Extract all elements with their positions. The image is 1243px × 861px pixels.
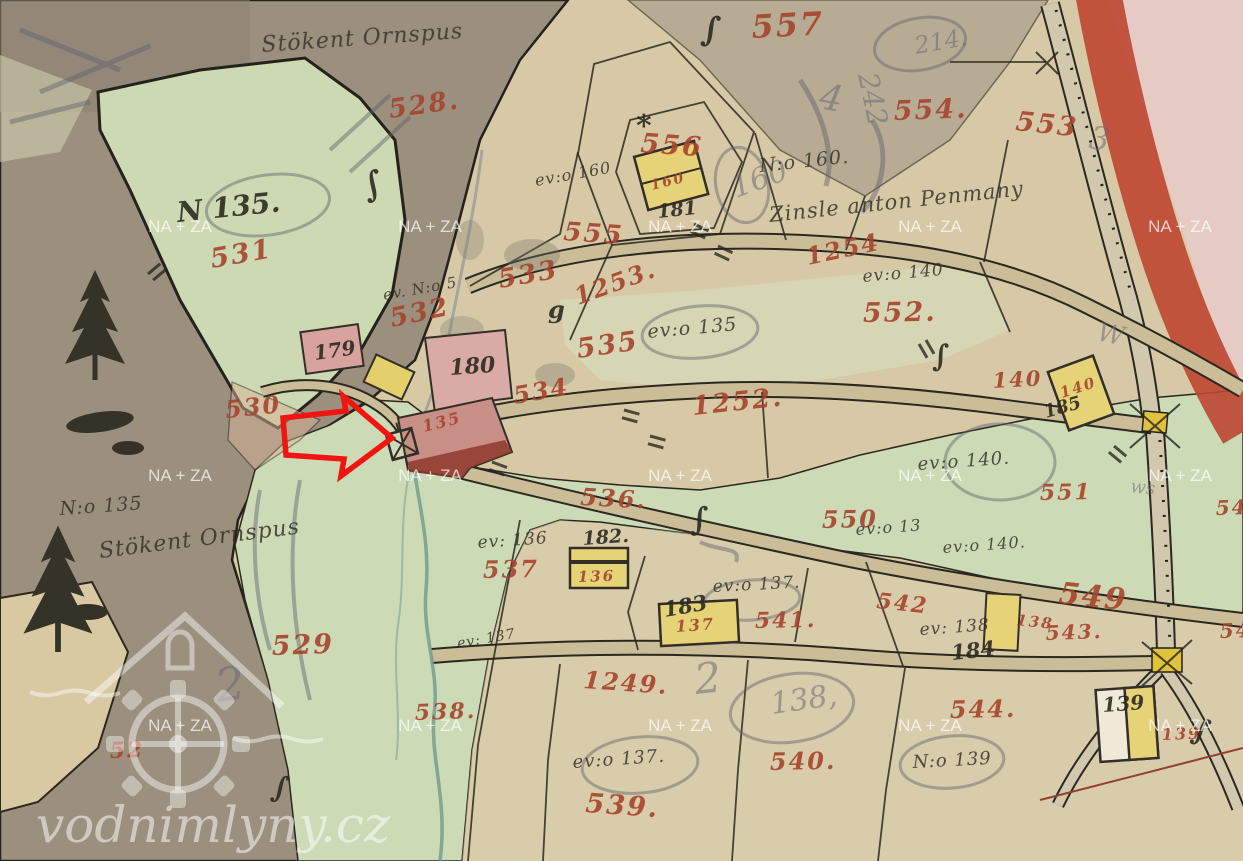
ink-label--14: ∫ bbox=[932, 339, 949, 374]
archive-watermark-2: NA + ZA bbox=[648, 217, 712, 236]
archive-watermark-9: NA + ZA bbox=[1148, 466, 1212, 485]
archive-watermark-3: NA + ZA bbox=[898, 217, 962, 236]
parcel-label-530-7: 530 bbox=[224, 389, 283, 424]
parcel-label-136-23: 136 bbox=[578, 567, 616, 586]
ink-label-182-2: 182. bbox=[582, 525, 630, 550]
parcel-label-540-34: 540. bbox=[770, 746, 837, 776]
archive-watermark-5: NA + ZA bbox=[148, 466, 212, 485]
ink-label-184-4: 184 bbox=[950, 636, 996, 665]
parcel-label-557-0: 557 bbox=[750, 4, 825, 46]
ink-label-180-8: 180 bbox=[449, 352, 497, 381]
parcel-label-543-29: 543. bbox=[1045, 619, 1103, 645]
cadastral-map: 214.160W24222138,43ws 557528.556554.5535… bbox=[0, 0, 1243, 861]
archive-watermark-1: NA + ZA bbox=[398, 217, 462, 236]
annotation-No139-17: N:o 139 bbox=[911, 748, 992, 773]
parcel-label-554-3: 554. bbox=[893, 93, 968, 127]
parcel-label-536-20: 536. bbox=[580, 482, 648, 514]
archive-watermark-12: NA + ZA bbox=[648, 716, 712, 735]
archive-watermark-4: NA + ZA bbox=[1148, 217, 1212, 236]
pencil-label-2-5: 2 bbox=[691, 652, 724, 704]
parcel-label-553-4: 553 bbox=[1014, 106, 1079, 143]
ink-label--12: ∫ bbox=[699, 9, 722, 51]
parcel-label-555-5: 555 bbox=[563, 217, 625, 251]
parcel-label-54-40: 54 bbox=[1219, 618, 1243, 643]
parcel-label-140-16: 140 bbox=[992, 365, 1043, 393]
ink-label-139-6: 139 bbox=[1102, 690, 1145, 717]
ink-label-g-9: g bbox=[548, 295, 565, 324]
parcel-label-539-33: 539. bbox=[585, 788, 661, 824]
parcel-label-54-39: 54 bbox=[1215, 495, 1243, 520]
archive-watermark-11: NA + ZA bbox=[398, 716, 462, 735]
parcel-label-529-36: 529 bbox=[271, 629, 334, 662]
archive-watermark-13: NA + ZA bbox=[898, 716, 962, 735]
parcel-label-549-30: 549 bbox=[1057, 576, 1129, 618]
archive-watermark-14: NA + ZA bbox=[1148, 716, 1212, 735]
archive-watermark-10: NA + ZA bbox=[148, 716, 212, 735]
site-watermark: vodnimlyny.cz bbox=[36, 796, 391, 854]
archive-watermark-8: NA + ZA bbox=[898, 466, 962, 485]
archive-watermark-0: NA + ZA bbox=[148, 217, 212, 236]
map-viewport: 214.160W24222138,43ws 557528.556554.5535… bbox=[0, 0, 1243, 861]
ink-label--13: ∫ bbox=[690, 500, 709, 538]
parcel-label-541-25: 541. bbox=[755, 607, 817, 634]
parcel-label-551-18: 551 bbox=[1040, 479, 1092, 506]
road-junction-square-2 bbox=[1152, 648, 1182, 672]
parcel-label-552-14: 552. bbox=[863, 297, 937, 329]
archive-watermark-6: NA + ZA bbox=[398, 466, 462, 485]
road-junction-square bbox=[1142, 411, 1168, 433]
parcel-label-537-24: 537 bbox=[483, 554, 540, 584]
parcel-label-1249-31: 1249. bbox=[583, 665, 670, 700]
parcel-label-542-27: 542 bbox=[875, 588, 929, 619]
ink-label--10: * bbox=[636, 109, 652, 144]
archive-watermark-7: NA + ZA bbox=[648, 466, 712, 485]
